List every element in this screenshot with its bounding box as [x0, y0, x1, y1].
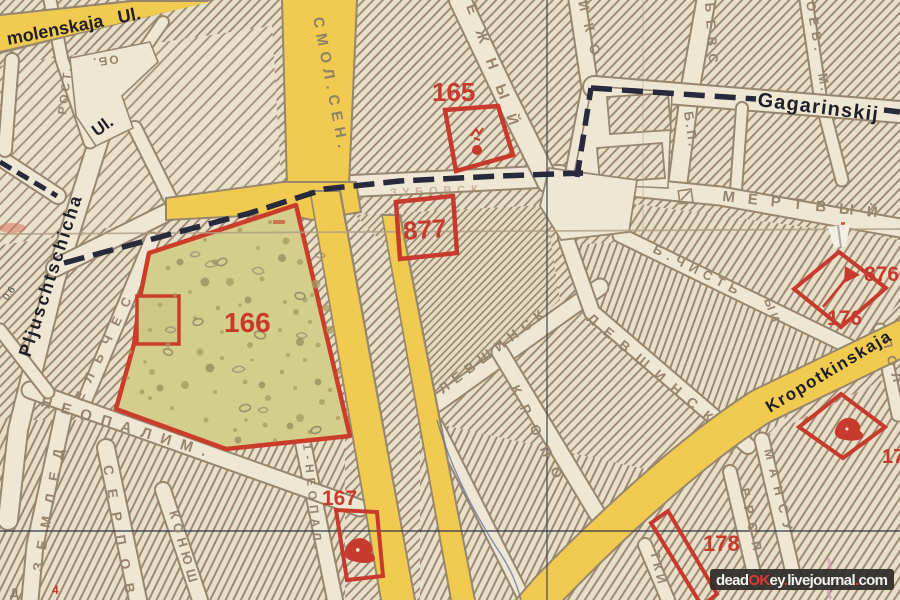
svg-text:deadOKey.livejournal.com: deadOKey.livejournal.com [716, 572, 888, 589]
